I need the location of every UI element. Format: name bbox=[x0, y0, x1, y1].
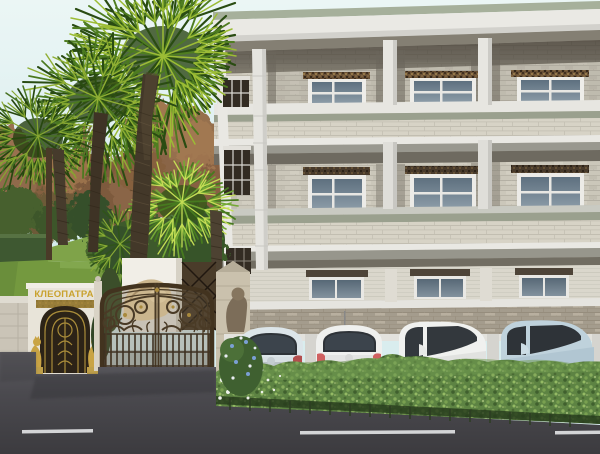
svg-text:КЛЕОПАТРА: КЛЕОПАТРА bbox=[34, 289, 93, 300]
